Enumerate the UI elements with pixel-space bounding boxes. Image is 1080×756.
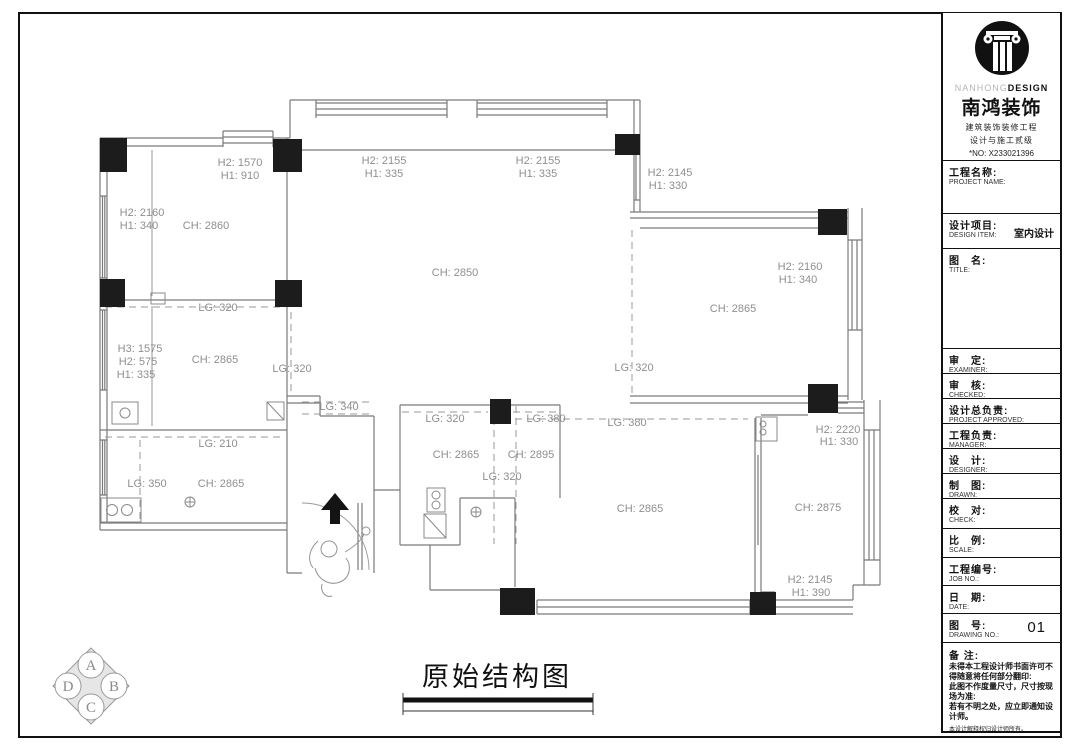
- brand-en-light: NANHONG: [955, 83, 1008, 93]
- dim-label: H2: 2145: [788, 574, 833, 586]
- field-manager: 工程负责: MANAGER:: [943, 424, 1060, 449]
- dim-label: H1: 340: [779, 274, 818, 286]
- notes-block: 备 注: 未得本工程设计师书面许可不得随意将任何部分翻印: 此图不作度量尺寸，尺…: [943, 643, 1060, 731]
- field-design-item: 设计项目: DESIGN ITEM: 室内设计: [943, 214, 1060, 249]
- dim-label: H1: 335: [365, 168, 404, 180]
- entry-arrow-icon: [321, 493, 349, 524]
- dim-label: LG: 320: [614, 362, 653, 374]
- dim-label: CH: 2875: [795, 502, 841, 514]
- drawing-title: 原始结构图: [422, 662, 572, 692]
- dim-label: H2: 1570: [218, 157, 263, 169]
- dim-label: LG: 210: [198, 438, 237, 450]
- dim-label: H1: 910: [221, 170, 260, 182]
- dim-label: LG: 320: [482, 471, 521, 483]
- dim-label: H2: 2220: [816, 424, 861, 436]
- drawing-sheet: H2: 1570H1: 910H2: 2160H1: 340CH: 2860H2…: [0, 0, 1080, 756]
- compass-letter-d: D: [63, 679, 74, 695]
- note-line: 此图不作度量尺寸，尺寸按现场为准:: [949, 682, 1056, 702]
- brand-block: NANHONGDESIGN 南鸿装饰 建筑装饰装修工程 设计与施工贰级 *NO:…: [943, 13, 1060, 161]
- title-block: NANHONGDESIGN 南鸿装饰 建筑装饰装修工程 设计与施工贰级 *NO:…: [941, 13, 1060, 733]
- field-checked: 审 核: CHECKED:: [943, 374, 1060, 399]
- dimension-labels: H2: 1570H1: 910H2: 2160H1: 340CH: 2860H2…: [117, 155, 861, 599]
- brand-cn: 南鸿装饰: [943, 93, 1060, 120]
- note-fine-print: 本设计解释权归设计师所有。: [949, 724, 1056, 731]
- reference-compass: A D C B: [53, 648, 129, 724]
- field-date: 日 期: DATE:: [943, 586, 1060, 614]
- dim-label: CH: 2865: [198, 478, 244, 490]
- structural-columns: [100, 134, 847, 615]
- brand-license-no: *NO: X233021396: [943, 149, 1060, 158]
- compass-letter-b: B: [109, 679, 119, 695]
- dim-label: H3: 1575: [118, 343, 163, 355]
- dim-label: LG: 320: [198, 302, 237, 314]
- dim-label: CH: 2865: [192, 354, 238, 366]
- dim-label: CH: 2860: [183, 220, 229, 232]
- floor-plan-canvas: H2: 1570H1: 910H2: 2160H1: 340CH: 2860H2…: [0, 0, 1080, 756]
- dim-label: H2: 2160: [778, 261, 823, 273]
- dim-label: H2: 575: [119, 356, 158, 368]
- compass-letter-c: C: [86, 700, 96, 716]
- field-scale: 比 例: SCALE:: [943, 529, 1060, 558]
- drawing-no-value: 01: [1027, 619, 1046, 636]
- column-logo-icon: [973, 19, 1031, 77]
- field-designer: 设 计: DESIGNER:: [943, 449, 1060, 474]
- dim-label: LG: 340: [319, 401, 358, 413]
- brand-line2: 设计与施工贰级: [943, 135, 1060, 146]
- dim-label: H2: 2155: [362, 155, 407, 167]
- field-title: 图 名: TITLE:: [943, 249, 1060, 349]
- notes-label: 备 注:: [949, 647, 1056, 662]
- note-line: 未得本工程设计师书面许可不得随意将任何部分翻印:: [949, 662, 1056, 682]
- dim-label: H1: 335: [519, 168, 558, 180]
- dim-label: CH: 2850: [432, 267, 478, 279]
- dim-label: LG: 320: [272, 363, 311, 375]
- page-border: [19, 13, 1061, 737]
- title-underline-ticks: [403, 693, 593, 715]
- dim-label: LG: 380: [607, 417, 646, 429]
- dim-label: H1: 340: [120, 220, 159, 232]
- dim-label: H1: 335: [117, 369, 156, 381]
- brand-en-bold: DESIGN: [1008, 83, 1049, 93]
- field-examiner: 审 定: EXAMINER:: [943, 349, 1060, 374]
- field-drawing-no: 图 号: DRAWING NO.: 01: [943, 614, 1060, 643]
- field-check: 校 对: CHECK:: [943, 499, 1060, 529]
- field-drawn: 制 图: DRAWN:: [943, 474, 1060, 499]
- brand-en: NANHONGDESIGN: [943, 83, 1060, 93]
- dim-label: CH: 2865: [710, 303, 756, 315]
- dim-label: LG: 350: [127, 478, 166, 490]
- design-item-value: 室内设计: [1014, 225, 1054, 240]
- dim-label: LG: 380: [526, 413, 565, 425]
- dim-label: H1: 390: [792, 587, 831, 599]
- dim-label: CH: 2895: [508, 449, 554, 461]
- dim-label: H1: 330: [649, 180, 688, 192]
- field-project-name: 工程名称: PROJECT NAME:: [943, 161, 1060, 214]
- dim-label: CH: 2865: [617, 503, 663, 515]
- dim-label: H2: 2160: [120, 207, 165, 219]
- brand-line1: 建筑装饰装修工程: [943, 122, 1060, 133]
- dim-label: H2: 2155: [516, 155, 561, 167]
- note-line: 若有不明之处，应立即通知设计师。: [949, 702, 1056, 722]
- dim-label: H2: 2145: [648, 167, 693, 179]
- compass-letter-a: A: [86, 658, 97, 674]
- field-job-no: 工程编号: JOB NO.:: [943, 558, 1060, 586]
- dim-label: CH: 2865: [433, 449, 479, 461]
- field-project-approved: 设计总负责: PROJECT APPROVED:: [943, 399, 1060, 424]
- dim-label: H1: 330: [820, 436, 859, 448]
- dim-label: LG: 320: [425, 413, 464, 425]
